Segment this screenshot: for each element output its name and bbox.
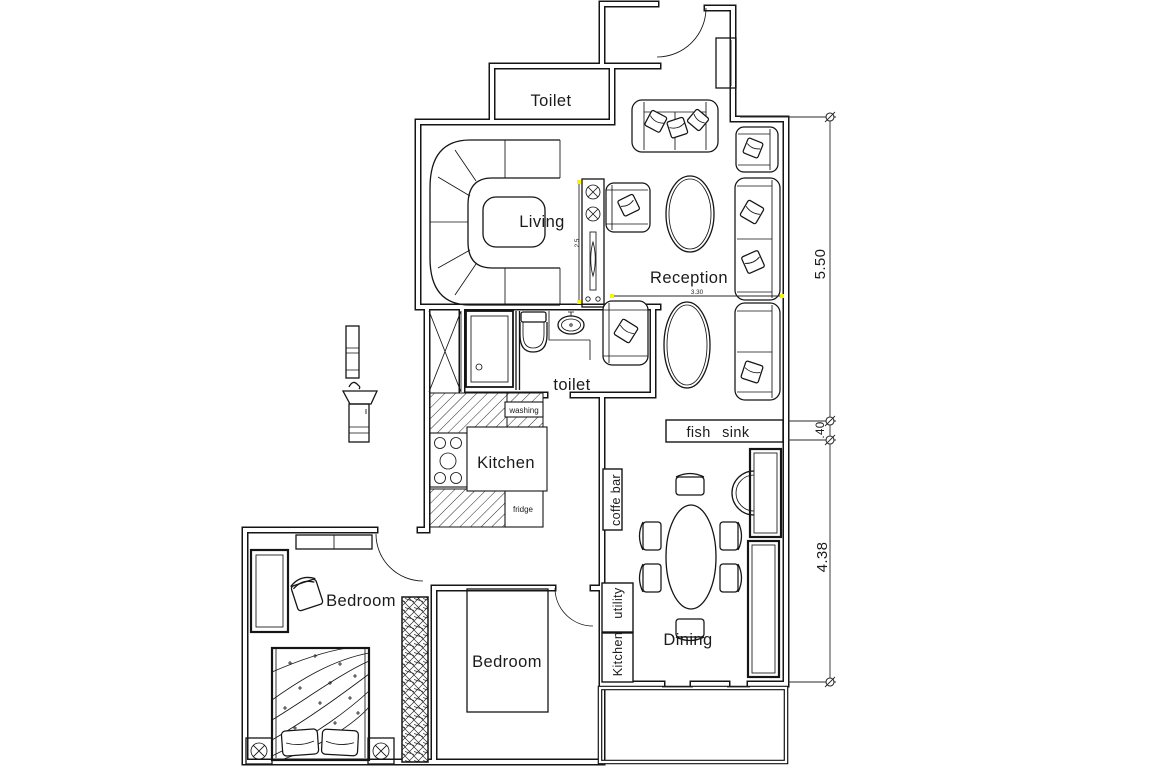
dining-label: Dining [663, 631, 712, 649]
bedroom-right-label: Bedroom [472, 653, 542, 671]
bedroom-left-label: Bedroom [326, 592, 396, 610]
dim-5-50: 5.50 [812, 249, 829, 280]
armchair-lower-left [603, 301, 648, 365]
reception-label: Reception [650, 269, 728, 287]
reception-sofa-right-upper [735, 178, 780, 300]
dining-chair [720, 522, 742, 550]
dining-chair [640, 522, 662, 550]
coffe-bar-label: coffe bar [609, 474, 623, 526]
washing-label: washing [508, 406, 538, 415]
floor-plan-drawing: Toilet Living Reception toilet Kitchen B… [0, 0, 1154, 780]
reception-sofa-right-lower [735, 303, 780, 400]
dining-chair [676, 474, 704, 496]
floor-plan-canvas: Toilet Living Reception toilet Kitchen B… [0, 0, 1154, 780]
sliding-closet [402, 597, 428, 762]
fish-sink-label: fish sink [687, 425, 750, 441]
armchair-mid-left [606, 183, 650, 232]
kitchen-stove [430, 433, 467, 487]
kitchen-label: Kitchen [477, 454, 535, 472]
toilet-top-label: Toilet [531, 92, 572, 110]
dim-40: .40 [815, 421, 827, 438]
dim-console: 2.5 [574, 238, 581, 247]
dining-chair [640, 564, 662, 592]
fridge-label: fridge [513, 505, 534, 514]
utility-label: utility [611, 587, 625, 619]
living-label: Living [519, 213, 565, 231]
dining-chair [720, 564, 742, 592]
toilet-small-label: toilet [553, 376, 590, 394]
dim-3-30: 3.30 [691, 289, 704, 296]
reception-sofa-top [632, 100, 718, 152]
kitchen-cabinet-label: Kitchen [611, 632, 625, 677]
armchair-top-right [736, 127, 778, 172]
dim-4-38: 4.38 [814, 542, 831, 573]
